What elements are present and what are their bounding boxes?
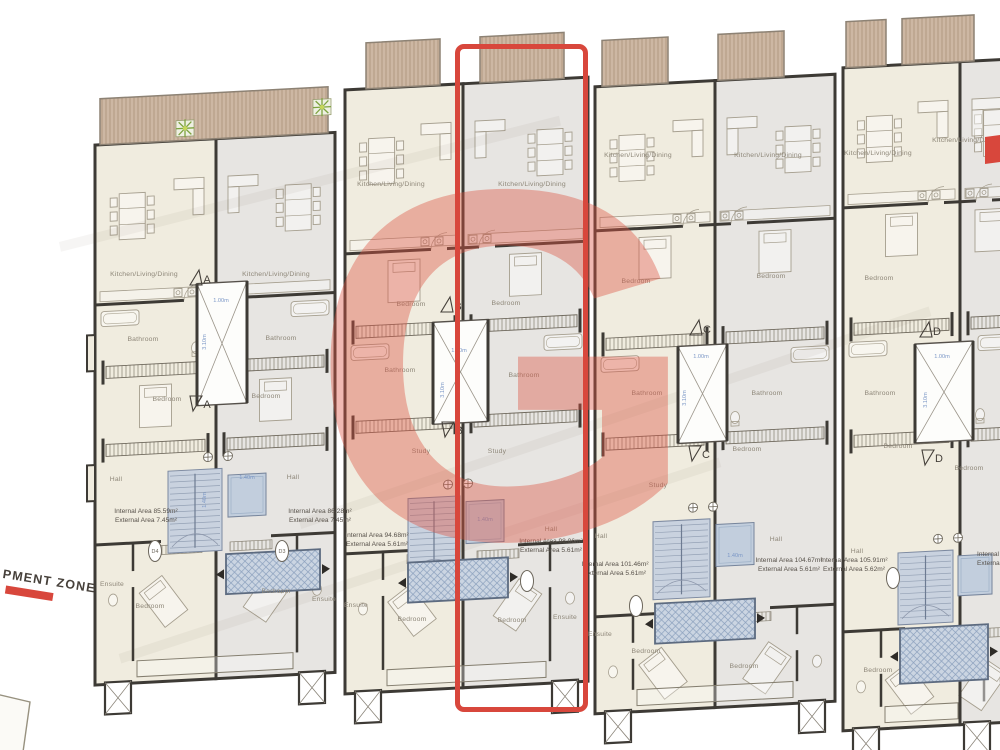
balconette [87,335,95,371]
room-label: Ensuite [100,581,124,588]
area-label: Internal Area 86.28m² [288,508,352,515]
room-label: Hall [770,536,783,543]
room-label: Bedroom [757,273,786,280]
room-label: Study [412,448,431,455]
svg-text:D: D [935,453,943,465]
dimension-label: 1.40m [239,475,255,481]
svg-text:A: A [203,274,211,286]
area-label: Internal Area 94.68m² [345,532,409,539]
area-label: External Area 7.45m² [289,517,352,524]
room-label: Bedroom [622,278,651,285]
area-label: Internal Area 101.46m² [581,561,649,568]
area-label: External Area 5.62m² [823,566,886,573]
roof-deck [718,31,784,80]
area-label: External Area 5.61m² [346,541,409,548]
room-label: Bedroom [136,603,165,610]
roof-deck [366,39,440,89]
room-label: Bedroom [884,443,913,450]
balconette [87,465,95,501]
dimension-label: 3.10m [202,334,208,350]
room-label: Hall [595,533,608,540]
corner-brand-mark [985,135,1000,164]
room-label: Ensuite [312,596,336,603]
room-label: Kitchen/Living/Dining [734,152,802,159]
room-label: Kitchen/Living/Dining [242,271,310,278]
room-label: Kitchen/Living/Dining [357,181,425,188]
room-label: Bathroom [631,390,662,397]
adjacent-building-fragment [0,694,30,750]
room-label: Bedroom [262,588,291,595]
svg-text:C: C [703,324,711,336]
room-label: Hall [851,548,864,555]
room-label: Bedroom [632,648,661,655]
area-label: Internal Area 104.67m² [755,557,823,564]
room-label: Bedroom [153,396,182,403]
svg-text:C: C [702,449,710,461]
room-label: Kitchen/Living/Dining [110,271,178,278]
dimension-label: 3.10m [923,392,929,408]
roof-deck [846,20,886,68]
room-label: Bedroom [397,301,426,308]
door-tag: D3 [276,541,289,562]
room-label: Bedroom [398,616,427,623]
room-label: Ensuite [588,631,612,638]
dimension-label: 1.00m [934,354,950,360]
room-label: Bathroom [265,335,296,342]
door-tag: D4 [149,541,162,562]
room-label: Kitchen/Living/Dining [604,152,672,159]
door-tag [887,568,900,589]
room-label: Kitchen/Living/Dining [844,150,912,157]
room-label: Bedroom [865,275,894,282]
door-tag [630,596,643,617]
area-label: External Area 5.61m² [584,570,647,577]
room-label: Hall [110,476,123,483]
room-label: Bedroom [955,465,984,472]
dimension-label: 1.00m [213,298,229,304]
area-label: Internal Area [977,551,1000,558]
roof-deck [902,15,974,65]
room-label: Ensuite [344,602,368,609]
room-label: Hall [287,474,300,481]
svg-text:A: A [203,399,211,411]
dimension-label: 3.10m [440,382,446,398]
area-label: Internal Area 85.59m² [114,508,178,515]
svg-text:D3: D3 [279,549,286,555]
room-label: Bedroom [730,663,759,670]
area-label: Internal Area 105.91m² [820,557,888,564]
room-label: Bedroom [733,446,762,453]
dimension-label: 3.10m [682,390,688,406]
area-label: External Area 5.61m² [758,566,821,573]
area-label: External Area 7.45m² [115,517,178,524]
room-label: Study [649,482,668,489]
svg-text:D4: D4 [152,549,159,555]
dimension-label: 1.40m [727,553,743,559]
area-label: External Area [977,560,1000,567]
room-label: Bathroom [864,390,895,397]
room-label: Bathroom [127,336,158,343]
room-label: Bathroom [751,390,782,397]
dimension-label: 1.40m [202,492,208,508]
dimension-label: 1.00m [693,354,709,360]
room-label: Bedroom [864,667,893,674]
floorplan-canvas: Kitchen/Living/DiningBathroomBedroomHall… [0,0,1000,750]
selected-unit-highlight[interactable] [455,44,588,712]
svg-text:D: D [933,326,941,338]
roof-deck [602,37,668,86]
room-label: Bathroom [384,367,415,374]
room-label: Bedroom [252,393,281,400]
